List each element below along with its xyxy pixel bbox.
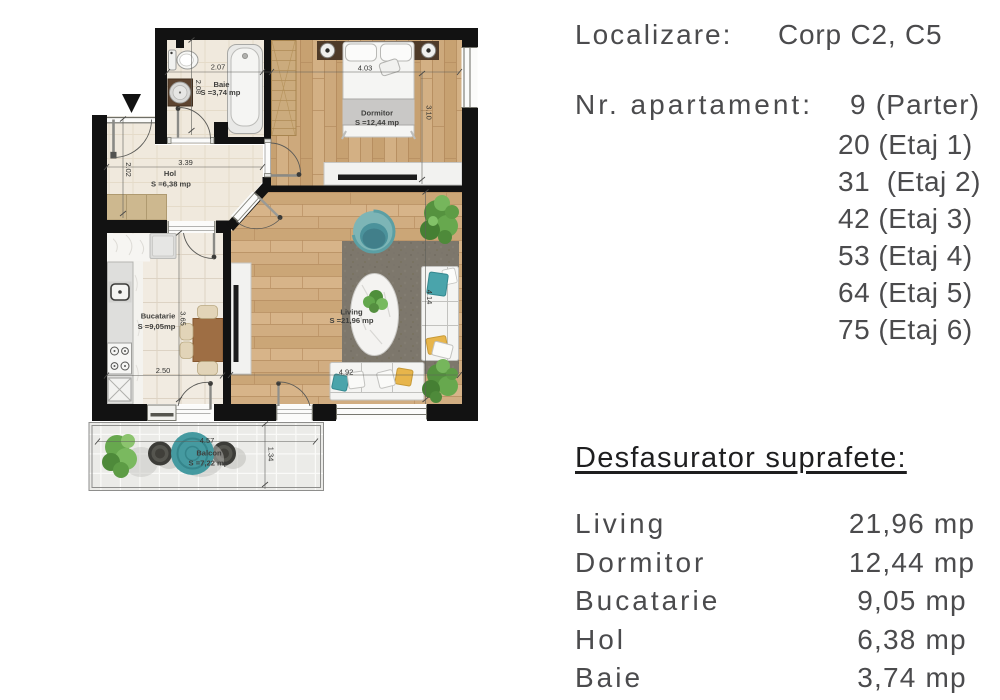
svg-text:2.50: 2.50 xyxy=(156,366,171,375)
svg-text:Dormitor: Dormitor xyxy=(361,109,393,118)
svg-text:S =9,05mp: S =9,05mp xyxy=(138,322,176,331)
svg-text:3.10: 3.10 xyxy=(425,105,434,120)
svg-text:S =21,96 mp: S =21,96 mp xyxy=(329,316,373,325)
svg-text:S =12,44 mp: S =12,44 mp xyxy=(355,118,399,127)
svg-text:4.57: 4.57 xyxy=(200,436,215,445)
svg-text:4.92: 4.92 xyxy=(339,368,354,377)
svg-text:4.03: 4.03 xyxy=(358,64,373,73)
svg-text:S =7,22 mp: S =7,22 mp xyxy=(189,459,229,468)
svg-text:4.14: 4.14 xyxy=(425,290,434,305)
svg-text:S =3,74 mp: S =3,74 mp xyxy=(201,88,241,97)
svg-text:1.34: 1.34 xyxy=(267,447,276,462)
svg-text:3.65: 3.65 xyxy=(179,311,188,326)
svg-text:2.07: 2.07 xyxy=(211,63,226,72)
svg-text:2.02: 2.02 xyxy=(124,162,133,177)
svg-text:Bucatarie: Bucatarie xyxy=(141,312,176,321)
svg-text:Hol: Hol xyxy=(164,169,176,178)
svg-text:3.39: 3.39 xyxy=(178,158,193,167)
svg-text:S =6,38 mp: S =6,38 mp xyxy=(151,180,191,189)
svg-text:Balcon: Balcon xyxy=(196,449,222,458)
